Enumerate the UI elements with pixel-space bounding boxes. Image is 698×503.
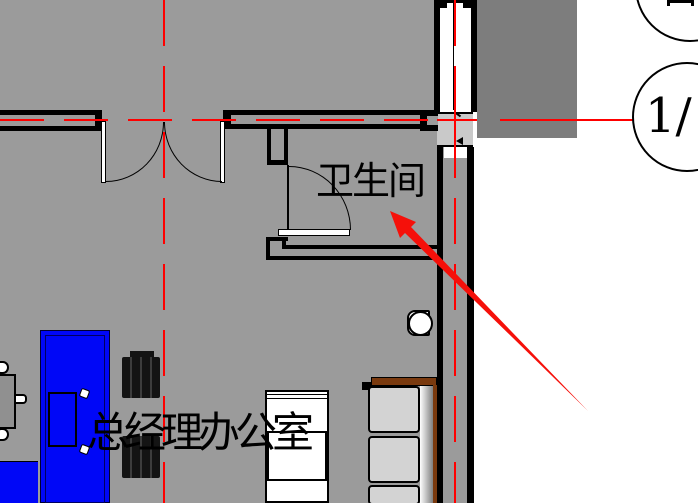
cabinet-door-3[interactable] [368,485,420,503]
grid-bubble-upper[interactable] [635,0,698,42]
grid-crosshair-vertical [454,104,456,154]
shaft-cap-right [463,0,471,8]
bathroom-south-wall-top-right [284,245,437,249]
bathroom-wall-stub [267,129,288,165]
bathroom-door-panel[interactable] [278,229,350,236]
grid-bubble-upper-glyph-tick-right [691,0,694,6]
detail-callout-label[interactable]: 1/ [645,92,692,140]
grid-centerline-vertical-2[interactable] [454,0,456,503]
east-wall-left-line [437,147,443,503]
side-table-edge-line-2 [267,398,327,399]
toilet-fixture-bowl[interactable] [408,311,433,336]
bathroom-south-wall-bottom [266,256,437,260]
office-chair-arm [14,394,27,404]
room-label-bathroom[interactable]: 卫生间 [316,162,424,200]
shaft-wall-left [434,0,440,112]
cabinet-door-2[interactable] [368,436,420,483]
grid-centerline-horizontal[interactable] [0,119,477,121]
shaft-wall-right [471,0,477,112]
guest-chair-top[interactable] [122,357,160,398]
bathroom-south-wall-cap [266,237,270,260]
floor-plan-canvas: 卫生间 总经理办公室 1/ [0,0,698,503]
cabinet-door-1[interactable] [368,386,420,433]
grid-bubble-upper-glyph-tick-left [667,0,670,6]
sofa-blue-patch[interactable] [0,461,38,503]
cabinet-wood-side [433,385,437,503]
cabinet-wood-top [371,377,437,386]
desk-drawer-unit[interactable] [48,392,77,447]
grid-bubble-upper-glyph [667,0,694,3]
east-wall-right-line [467,147,474,503]
grid-crosshair-horizontal [437,119,477,121]
exterior-dark-region [477,0,577,138]
room-label-office[interactable]: 总经理办公室 [87,412,309,454]
column-arrow-mark [456,137,463,145]
side-table-edge-line-1 [267,394,327,395]
cabinet-side-shaded [420,386,433,503]
callout-leader-line [500,119,633,121]
